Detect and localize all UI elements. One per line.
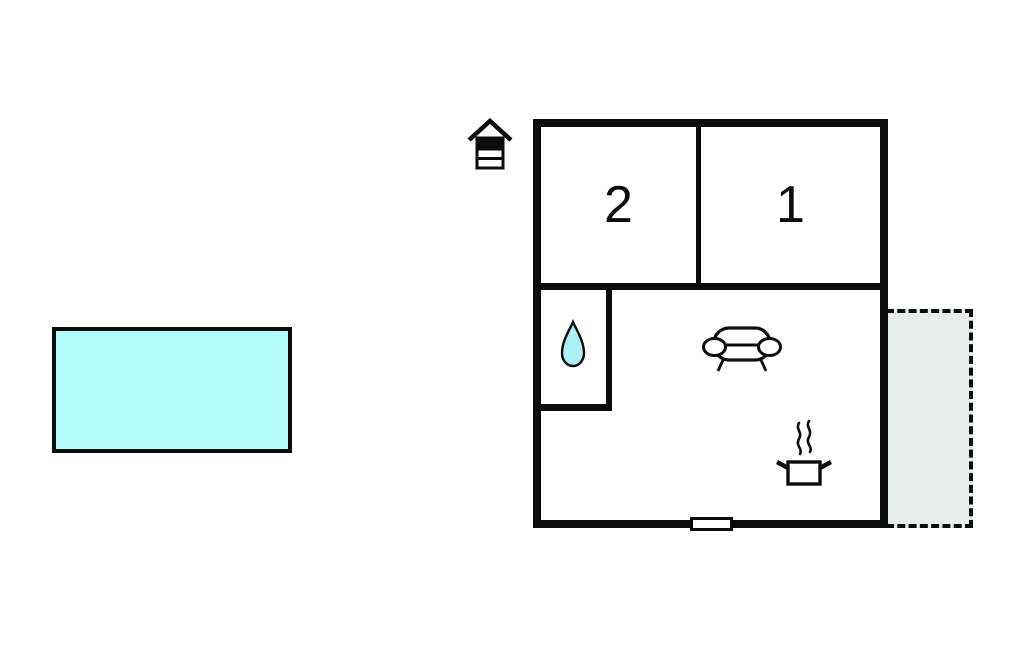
cooking-pot-icon bbox=[774, 418, 834, 488]
room-2-label: 2 bbox=[604, 179, 633, 231]
room-1-label: 1 bbox=[776, 179, 805, 231]
water-drop-icon bbox=[558, 319, 588, 369]
grill-icon bbox=[467, 118, 513, 170]
room-2: 2 bbox=[541, 127, 696, 283]
house-outline: 2 1 bbox=[533, 119, 888, 528]
wall-bedroom-divider bbox=[696, 127, 701, 283]
floorplan-canvas: 2 1 bbox=[0, 0, 1024, 652]
wall-bathroom-right bbox=[606, 290, 612, 411]
wall-bathroom-bottom bbox=[541, 404, 612, 411]
pool-area bbox=[52, 327, 292, 453]
door-opening bbox=[690, 517, 733, 531]
wall-bedrooms-living bbox=[541, 283, 880, 290]
terrace-area bbox=[886, 309, 973, 528]
room-1: 1 bbox=[701, 127, 880, 283]
sofa-icon bbox=[702, 324, 782, 372]
